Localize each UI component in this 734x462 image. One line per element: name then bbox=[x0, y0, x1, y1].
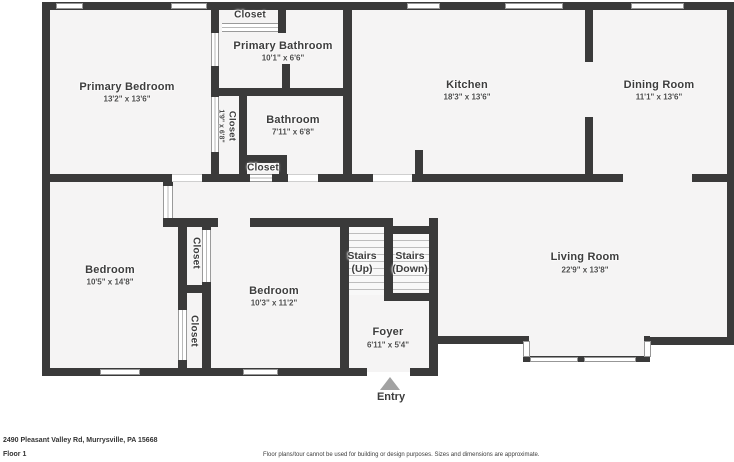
window bbox=[407, 3, 440, 9]
floor-fill-bay bbox=[525, 336, 648, 358]
wall bbox=[384, 293, 437, 301]
property-address: 2490 Pleasant Valley Rd, Murrysville, PA… bbox=[3, 437, 157, 444]
room-dims-bedroom-left: 10'5" x 14'8" bbox=[87, 278, 134, 287]
window bbox=[644, 341, 651, 357]
room-dims-living-room: 22'9" x 13'8" bbox=[562, 266, 609, 275]
wall bbox=[412, 174, 623, 182]
wall bbox=[202, 282, 211, 368]
wall bbox=[318, 174, 373, 182]
wall bbox=[282, 64, 290, 90]
window bbox=[530, 357, 578, 362]
wall bbox=[644, 337, 734, 345]
wall bbox=[340, 218, 349, 376]
wall bbox=[211, 10, 219, 33]
wall bbox=[178, 218, 187, 310]
wall bbox=[239, 96, 247, 178]
window bbox=[56, 3, 83, 9]
window bbox=[584, 357, 636, 362]
room-label-primary-bedroom: Primary Bedroom bbox=[79, 81, 174, 93]
room-label-living-room: Living Room bbox=[551, 251, 620, 263]
disclaimer-text: Floor plans/tour cannot be used for buil… bbox=[263, 452, 540, 458]
wall bbox=[42, 174, 172, 182]
wall bbox=[278, 10, 286, 33]
sliding-door bbox=[211, 33, 219, 66]
floor-label: Floor 1 bbox=[3, 451, 26, 458]
wall bbox=[585, 117, 593, 182]
sliding-door bbox=[222, 23, 278, 32]
wall bbox=[202, 218, 211, 230]
room-dims-primary-bedroom: 13'2" x 13'6" bbox=[104, 95, 151, 104]
room-label-closet-narrow: Closet bbox=[227, 111, 238, 141]
door-opening bbox=[172, 174, 202, 182]
room-label-stairs-up: Stairs (Up) bbox=[347, 250, 376, 276]
wall bbox=[42, 2, 50, 376]
room-label-closet-upper: Closet bbox=[191, 237, 202, 269]
room-dims-kitchen: 18'3" x 13'6" bbox=[444, 93, 491, 102]
wall bbox=[211, 66, 219, 97]
wall bbox=[250, 218, 384, 227]
sliding-door bbox=[202, 230, 211, 282]
door-opening bbox=[373, 174, 412, 182]
wall bbox=[272, 174, 288, 182]
room-label-bedroom-middle: Bedroom bbox=[249, 285, 299, 297]
room-dims-bedroom-middle: 10'3" x 11'2" bbox=[251, 299, 298, 308]
wall bbox=[42, 368, 367, 376]
wall bbox=[343, 10, 352, 182]
sliding-door bbox=[163, 186, 173, 218]
room-label-closet-top: Closet bbox=[234, 10, 266, 21]
room-label-kitchen: Kitchen bbox=[446, 79, 488, 91]
entry-arrow-icon bbox=[380, 377, 400, 390]
stairs-up-line2: (Up) bbox=[352, 263, 373, 275]
wall bbox=[178, 285, 211, 293]
room-dims-primary-bathroom: 10'1" x 6'6" bbox=[262, 54, 305, 63]
wall bbox=[202, 174, 250, 182]
room-dims-dining-room: 11'1" x 13'6" bbox=[636, 93, 683, 102]
wall bbox=[692, 174, 734, 182]
window bbox=[171, 3, 207, 9]
wall bbox=[415, 150, 423, 182]
window bbox=[505, 3, 563, 9]
room-label-closet-lower: Closet bbox=[189, 315, 200, 347]
stairs-down-line2: (Down) bbox=[392, 263, 428, 275]
room-dims-bathroom: 7'11" x 6'8" bbox=[272, 128, 314, 137]
wall bbox=[178, 360, 187, 368]
entry-label: Entry bbox=[377, 391, 405, 403]
sliding-door bbox=[178, 310, 187, 360]
room-label-closet-hall: Closet bbox=[247, 163, 279, 174]
stairs-down-line1: Stairs bbox=[395, 250, 424, 262]
window bbox=[100, 369, 140, 375]
stairs-up-line1: Stairs bbox=[347, 250, 376, 262]
room-label-primary-bathroom: Primary Bathroom bbox=[233, 40, 332, 52]
room-label-foyer: Foyer bbox=[373, 326, 404, 338]
room-dims-foyer: 6'11" x 5'4" bbox=[367, 341, 409, 350]
window bbox=[523, 341, 530, 357]
window bbox=[631, 3, 684, 9]
window bbox=[243, 369, 278, 375]
room-dims-closet-narrow: 1'9" x 6'8" bbox=[218, 109, 225, 142]
door-opening bbox=[288, 174, 318, 182]
wall bbox=[585, 10, 593, 62]
room-label-bathroom: Bathroom bbox=[266, 114, 320, 126]
room-label-dining-room: Dining Room bbox=[624, 79, 695, 91]
sliding-door bbox=[250, 174, 272, 182]
room-label-stairs-down: Stairs (Down) bbox=[392, 250, 428, 276]
floor-plan: Primary Bedroom 13'2" x 13'6" Closet Pri… bbox=[0, 0, 734, 462]
wall bbox=[436, 336, 529, 344]
room-label-bedroom-left: Bedroom bbox=[85, 264, 135, 276]
